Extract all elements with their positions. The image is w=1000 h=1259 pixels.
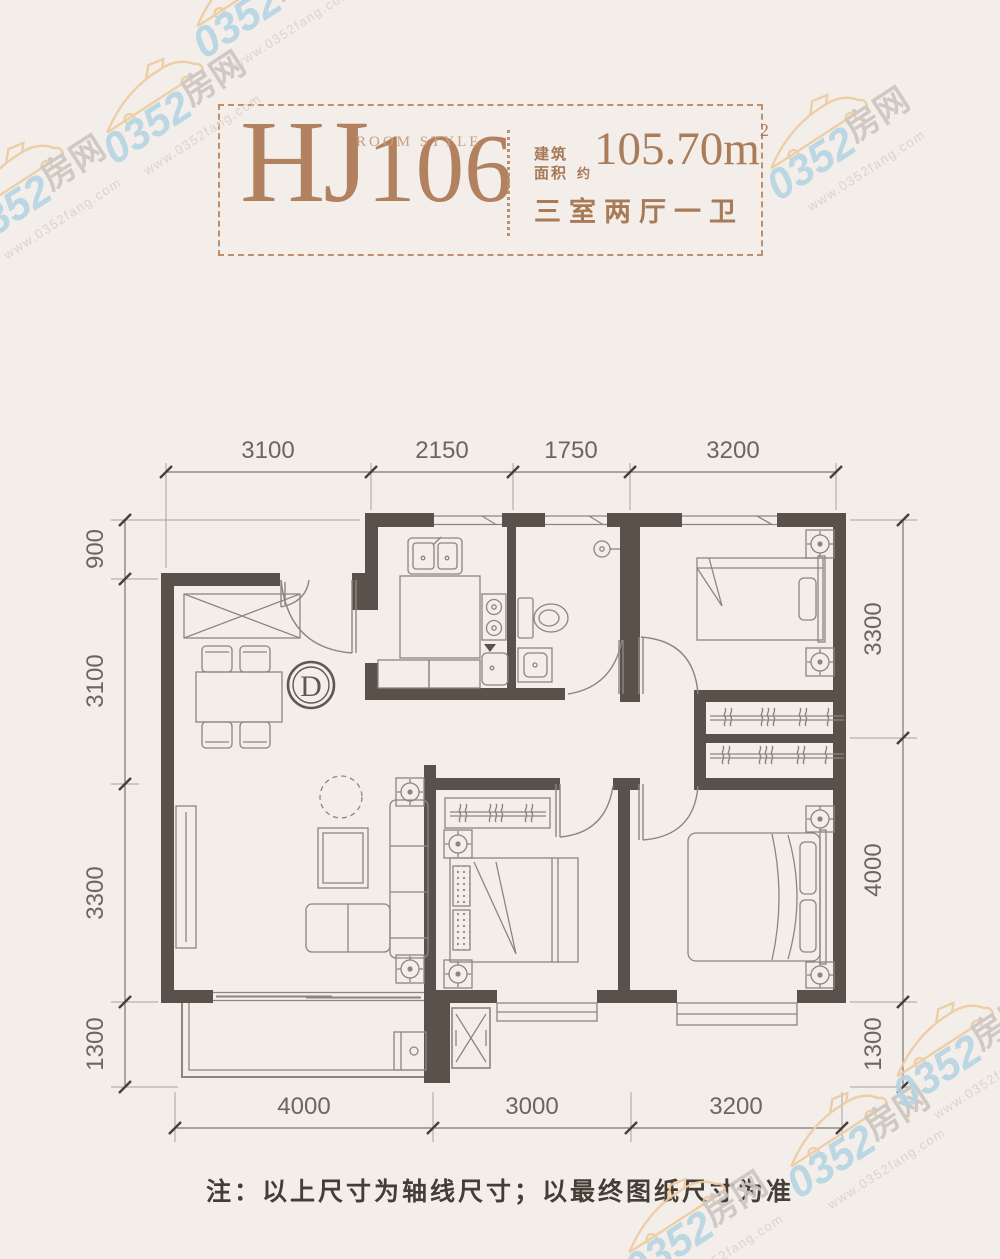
svg-text:1300: 1300 [82,1017,109,1070]
bath-door [568,640,623,694]
balcony-slider [213,993,424,1001]
svg-text:1750: 1750 [544,437,597,464]
bedroom-window [682,516,777,525]
dimension-bottom: 4000 3000 3200 [169,1092,848,1142]
washing-machine [394,1032,426,1070]
washbasin [518,648,552,682]
kitchen-cabinet [378,660,429,688]
dimension-right: 3300 4000 1300 [850,514,917,1093]
middle-bedroom-door [556,784,613,837]
svg-text:3300: 3300 [860,602,887,655]
entry-cabinet [184,594,300,638]
kitchen-sink [408,537,462,574]
sofa [306,800,428,958]
svg-text:3200: 3200 [709,1093,762,1120]
svg-text:900: 900 [82,529,109,569]
master-door [639,784,698,840]
fridge [482,644,508,685]
kitchen-cabinet [429,660,480,688]
svg-text:3100: 3100 [82,654,109,707]
bed-middle [450,858,578,962]
lamp-icon [397,956,423,982]
bedroom-door [639,637,698,694]
dimension-left: 900 3100 3300 1300 [82,514,360,1093]
kitchen-counter [400,576,480,658]
dimension-top: 3100 2150 1750 3200 [160,437,842,568]
flue [452,1008,490,1068]
lamp-icon [807,806,833,832]
svg-text:1300: 1300 [860,1017,887,1070]
watermarks [0,0,1000,1259]
wardrobe [445,798,550,828]
svg-text:4000: 4000 [860,843,887,896]
svg-text:D: D [300,670,322,703]
middle-bedroom-bay-window [497,1003,597,1021]
lamp-icon [807,962,833,988]
balcony-rail [182,1003,424,1077]
toilet [518,598,568,638]
lamp-icon [445,961,471,987]
bath-window [545,516,607,525]
svg-text:4000: 4000 [277,1093,330,1120]
kitchen-window [434,516,502,525]
lamp-icon [397,779,423,805]
dining-set [196,646,282,748]
lamp-icon [807,531,833,557]
bed-secondary [697,556,825,642]
svg-text:3100: 3100 [241,437,294,464]
floorplan-poster: HJ106 ROOM STYLE 建筑 面积 约 105.70m2 三室两厅一卫… [0,0,1000,1259]
svg-text:2150: 2150 [415,437,468,464]
lamp-icon [807,649,833,675]
svg-text:3000: 3000 [505,1093,558,1120]
lamp-icon [445,831,471,857]
door-marker: D [288,662,334,708]
plant [320,776,362,818]
coffee-table [318,828,368,888]
master-bay-window [677,1003,797,1025]
entry-door [281,580,356,653]
bed-master [688,830,826,964]
shower-icon [594,541,620,557]
tv-cabinet [176,806,196,948]
stove [482,594,506,640]
svg-text:3200: 3200 [706,437,759,464]
floor-plan-svg: 0352 房网 www.0352fang.com [0,0,1000,1259]
svg-text:3300: 3300 [82,866,109,919]
